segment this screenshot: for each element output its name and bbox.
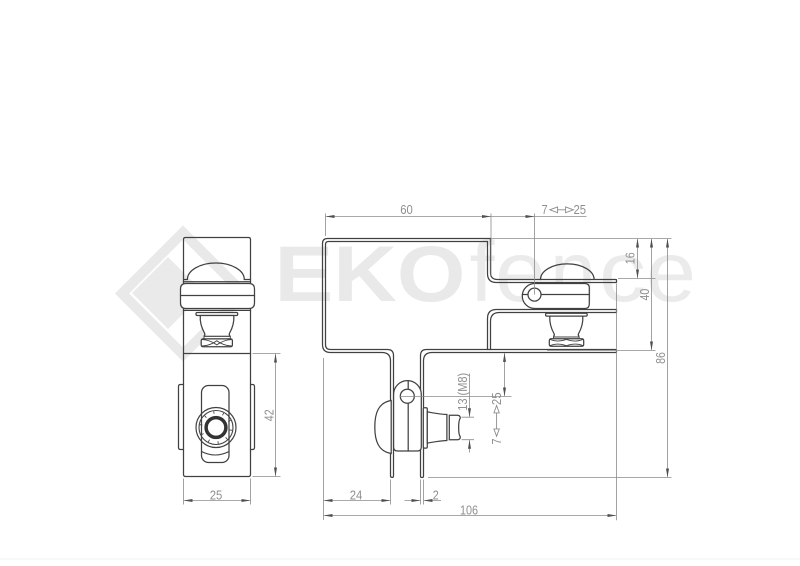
svg-text:7: 7 (542, 202, 548, 217)
svg-text:13 (M8): 13 (M8) (455, 373, 470, 411)
svg-text:86: 86 (653, 352, 668, 364)
svg-text:25: 25 (210, 487, 223, 502)
svg-text:16: 16 (623, 252, 638, 264)
svg-text:25: 25 (574, 202, 587, 217)
svg-text:40: 40 (637, 289, 652, 301)
svg-text:106: 106 (460, 502, 478, 517)
svg-text:24: 24 (350, 487, 363, 502)
svg-text:2: 2 (433, 487, 439, 502)
svg-text:EKO: EKO (275, 229, 466, 318)
svg-text:60: 60 (400, 202, 413, 217)
svg-text:c: c (599, 225, 646, 320)
svg-text:42: 42 (262, 409, 277, 421)
svg-text:e: e (646, 225, 696, 320)
svg-text:25: 25 (489, 393, 504, 406)
svg-text:7: 7 (489, 439, 504, 445)
